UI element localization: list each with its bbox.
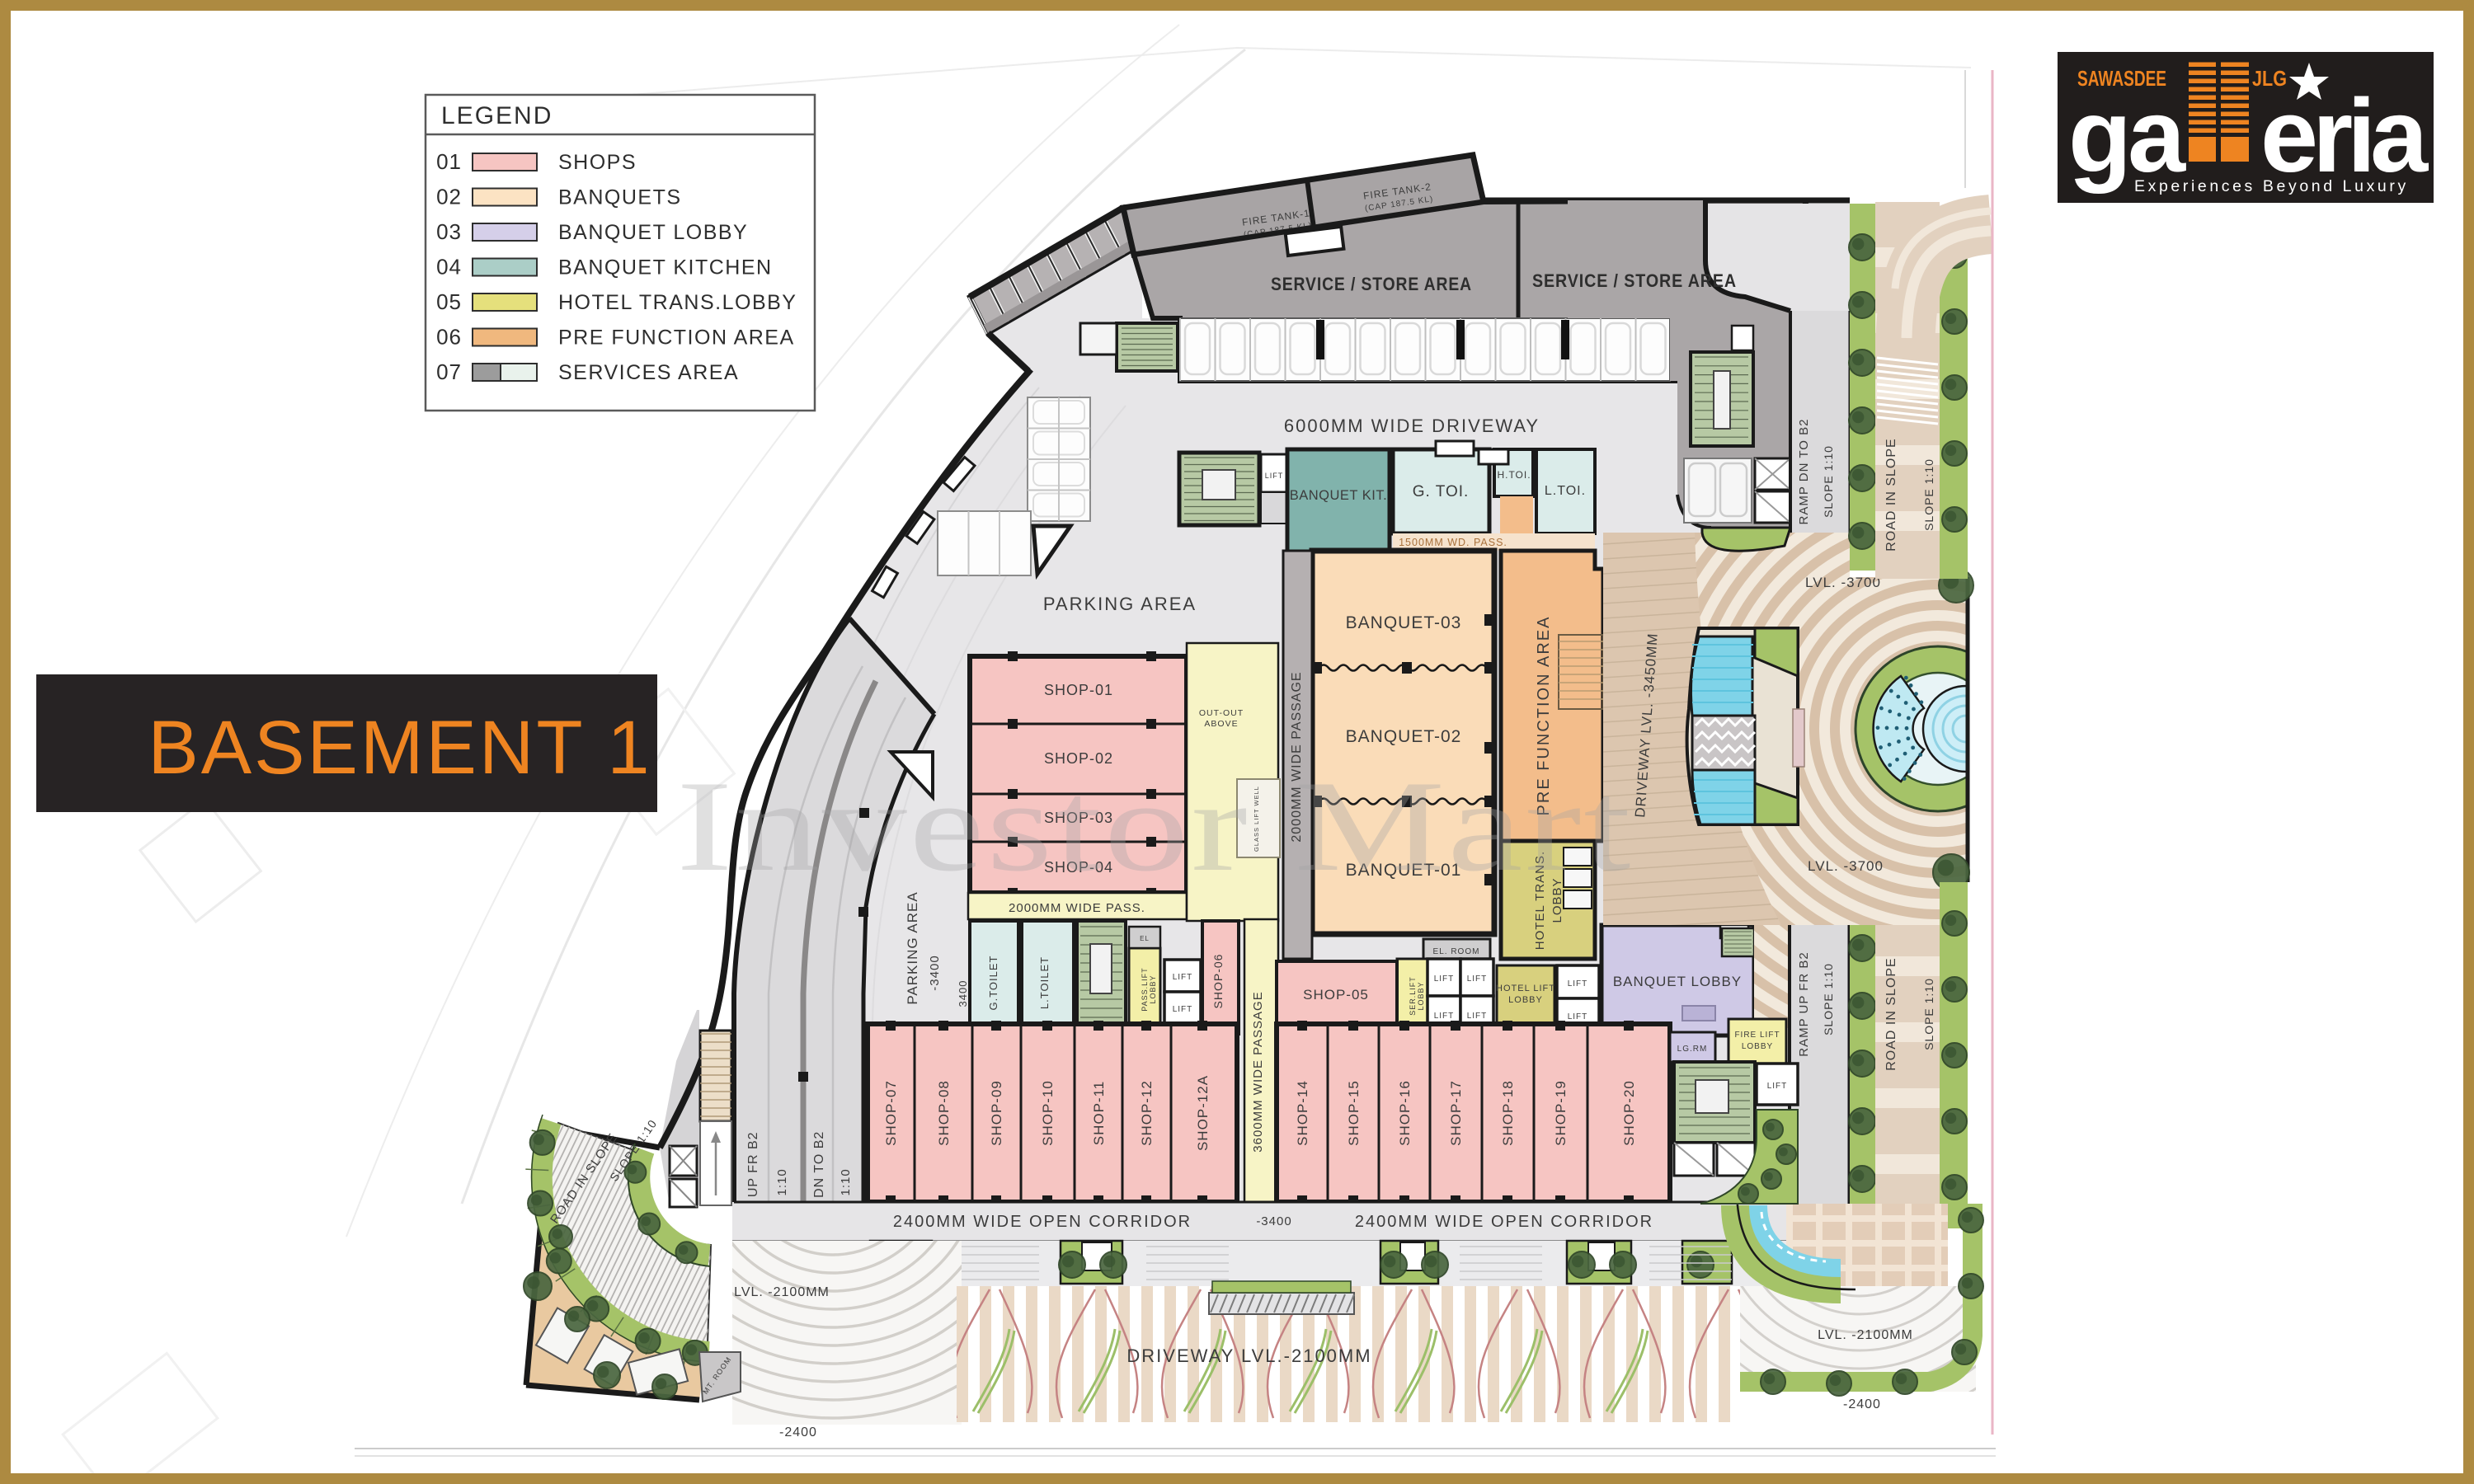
svg-text:L.TOI.: L.TOI. — [1545, 484, 1586, 498]
svg-text:BANQUET-02: BANQUET-02 — [1346, 727, 1462, 746]
svg-text:OUT-OUT: OUT-OUT — [1199, 708, 1244, 718]
svg-text:LIFT: LIFT — [1173, 1005, 1193, 1014]
svg-text:1500MM WD. PASS.: 1500MM WD. PASS. — [1399, 537, 1507, 548]
svg-text:LIFT: LIFT — [1434, 974, 1455, 984]
svg-text:SHOP-19: SHOP-19 — [1553, 1080, 1569, 1146]
svg-text:eria: eria — [2260, 77, 2429, 194]
svg-text:SHOP-01: SHOP-01 — [1044, 682, 1113, 698]
svg-text:SHOP-14: SHOP-14 — [1295, 1080, 1310, 1146]
svg-text:EL: EL — [1140, 935, 1150, 942]
svg-text:SHOP-17: SHOP-17 — [1448, 1080, 1464, 1146]
svg-text:PARKING AREA: PARKING AREA — [1043, 594, 1197, 614]
svg-text:BANQUET-03: BANQUET-03 — [1346, 613, 1462, 632]
svg-text:SHOP-11: SHOP-11 — [1091, 1081, 1107, 1146]
svg-text:G. TOI.: G. TOI. — [1413, 483, 1470, 500]
svg-text:SLOPE 1:10: SLOPE 1:10 — [1822, 445, 1835, 518]
svg-text:SHOP-20: SHOP-20 — [1621, 1080, 1637, 1146]
svg-text:-3400: -3400 — [1256, 1214, 1291, 1228]
svg-text:LEGEND: LEGEND — [441, 102, 553, 129]
svg-text:-2400: -2400 — [1843, 1397, 1881, 1411]
svg-text:PARKING AREA: PARKING AREA — [905, 891, 920, 1004]
svg-text:-2400: -2400 — [779, 1425, 817, 1439]
svg-text:SERVICE / STORE AREA: SERVICE / STORE AREA — [1532, 270, 1737, 291]
svg-text:03: 03 — [436, 219, 462, 244]
svg-text:LIFT: LIFT — [1467, 1012, 1488, 1021]
svg-text:01: 01 — [436, 149, 462, 174]
svg-text:07: 07 — [436, 359, 462, 384]
svg-text:SERVICE / STORE AREA: SERVICE / STORE AREA — [1271, 274, 1472, 294]
svg-text:BANQUET LOBBY: BANQUET LOBBY — [558, 221, 748, 244]
svg-text:SHOP-18: SHOP-18 — [1500, 1080, 1516, 1146]
svg-text:SLOPE 1:10: SLOPE 1:10 — [1822, 963, 1835, 1036]
svg-text:04: 04 — [436, 255, 462, 279]
svg-text:SHOP-12A: SHOP-12A — [1195, 1075, 1211, 1151]
svg-text:FIRE LIFT: FIRE LIFT — [1734, 1031, 1780, 1040]
svg-text:ga: ga — [2068, 77, 2186, 194]
svg-text:ROAD IN SLOPE: ROAD IN SLOPE — [1884, 957, 1898, 1070]
svg-text:SHOP-15: SHOP-15 — [1346, 1080, 1362, 1146]
svg-text:PASS.LIFT: PASS.LIFT — [1141, 967, 1149, 1011]
svg-text:LIFT: LIFT — [1767, 1082, 1788, 1091]
svg-text:ROAD IN SLOPE: ROAD IN SLOPE — [1884, 438, 1898, 551]
svg-text:SHOP-08: SHOP-08 — [936, 1080, 952, 1146]
svg-text:SER.LIFT: SER.LIFT — [1409, 976, 1417, 1016]
svg-text:SHOP-12: SHOP-12 — [1139, 1080, 1155, 1146]
svg-text:2000MM WIDE PASS.: 2000MM WIDE PASS. — [1009, 901, 1145, 915]
svg-text:HOTEL LIFT: HOTEL LIFT — [1496, 984, 1555, 993]
svg-text:LIFT: LIFT — [1434, 1012, 1455, 1021]
svg-text:SHOP-09: SHOP-09 — [989, 1080, 1004, 1146]
svg-text:Investor Mart: Investor Mart — [676, 754, 1633, 899]
svg-text:BANQUET KITCHEN: BANQUET KITCHEN — [558, 256, 773, 279]
svg-text:SHOP-10: SHOP-10 — [1040, 1080, 1056, 1146]
svg-text:RAMP UP FR B2: RAMP UP FR B2 — [1797, 951, 1811, 1056]
svg-text:LVL. -3700: LVL. -3700 — [1805, 575, 1881, 590]
svg-text:LIFT: LIFT — [1568, 979, 1588, 989]
svg-text:BANQUET LOBBY: BANQUET LOBBY — [1613, 974, 1742, 989]
svg-text:PRE FUNCTION AREA: PRE FUNCTION AREA — [558, 326, 795, 350]
svg-text:LIFT: LIFT — [1568, 1012, 1588, 1021]
svg-text:Experiences Beyond Luxury: Experiences Beyond Luxury — [2134, 177, 2409, 195]
svg-text:SHOP-06: SHOP-06 — [1211, 954, 1225, 1009]
svg-text:3400: 3400 — [957, 980, 969, 1007]
svg-text:-3400: -3400 — [928, 955, 942, 990]
svg-text:SHOP-05: SHOP-05 — [1303, 987, 1369, 1003]
svg-text:LOBBY: LOBBY — [1149, 974, 1157, 1003]
svg-text:H.TOI.: H.TOI. — [1497, 469, 1531, 481]
svg-text:06: 06 — [436, 325, 462, 350]
svg-text:05: 05 — [436, 289, 462, 314]
svg-text:LOBBY: LOBBY — [1417, 981, 1425, 1010]
svg-text:LOBBY: LOBBY — [1508, 995, 1543, 1005]
svg-text:RAMP DN TO B2: RAMP DN TO B2 — [1797, 419, 1811, 525]
svg-text:DRIVEWAY LVL.-2100MM: DRIVEWAY LVL.-2100MM — [1126, 1345, 1371, 1366]
svg-text:BANQUETS: BANQUETS — [558, 186, 682, 209]
svg-text:02: 02 — [436, 185, 462, 209]
svg-text:SHOP-16: SHOP-16 — [1397, 1080, 1413, 1146]
svg-text:2400MM WIDE OPEN CORRIDOR: 2400MM WIDE OPEN CORRIDOR — [1355, 1213, 1653, 1231]
svg-text:LG.RM: LG.RM — [1677, 1045, 1708, 1054]
svg-text:LVL. -2100MM: LVL. -2100MM — [1818, 1328, 1913, 1342]
svg-text:LOBBY: LOBBY — [1742, 1042, 1773, 1051]
svg-text:HOTEL TRANS.LOBBY: HOTEL TRANS.LOBBY — [558, 291, 797, 314]
svg-text:EL. ROOM: EL. ROOM — [1433, 947, 1480, 956]
svg-text:L.TOILET: L.TOILET — [1038, 956, 1051, 1009]
svg-text:SERVICES AREA: SERVICES AREA — [558, 361, 739, 384]
svg-text:SLOPE 1:10: SLOPE 1:10 — [1922, 458, 1935, 531]
svg-text:SHOPS: SHOPS — [558, 151, 637, 174]
svg-text:6000MM WIDE DRIVEWAY: 6000MM WIDE DRIVEWAY — [1284, 416, 1540, 436]
svg-text:LVL. -3700: LVL. -3700 — [1808, 858, 1884, 874]
svg-text:BANQUET KIT.: BANQUET KIT. — [1290, 488, 1387, 503]
svg-text:3600MM WIDE PASSAGE: 3600MM WIDE PASSAGE — [1251, 991, 1265, 1152]
svg-text:LIFT: LIFT — [1467, 974, 1488, 984]
svg-text:G.TOILET: G.TOILET — [987, 956, 999, 1011]
svg-text:SHOP-07: SHOP-07 — [883, 1080, 899, 1146]
svg-text:2400MM WIDE OPEN CORRIDOR: 2400MM WIDE OPEN CORRIDOR — [893, 1213, 1192, 1231]
svg-text:LIFT: LIFT — [1173, 973, 1193, 982]
svg-text:LVL. -2100MM: LVL. -2100MM — [734, 1285, 830, 1299]
svg-text:ABOVE: ABOVE — [1204, 719, 1238, 729]
svg-text:SLOPE 1:10: SLOPE 1:10 — [1922, 978, 1935, 1050]
svg-text:LIFT: LIFT — [1265, 472, 1284, 480]
svg-text:BASEMENT 1: BASEMENT 1 — [148, 706, 651, 790]
